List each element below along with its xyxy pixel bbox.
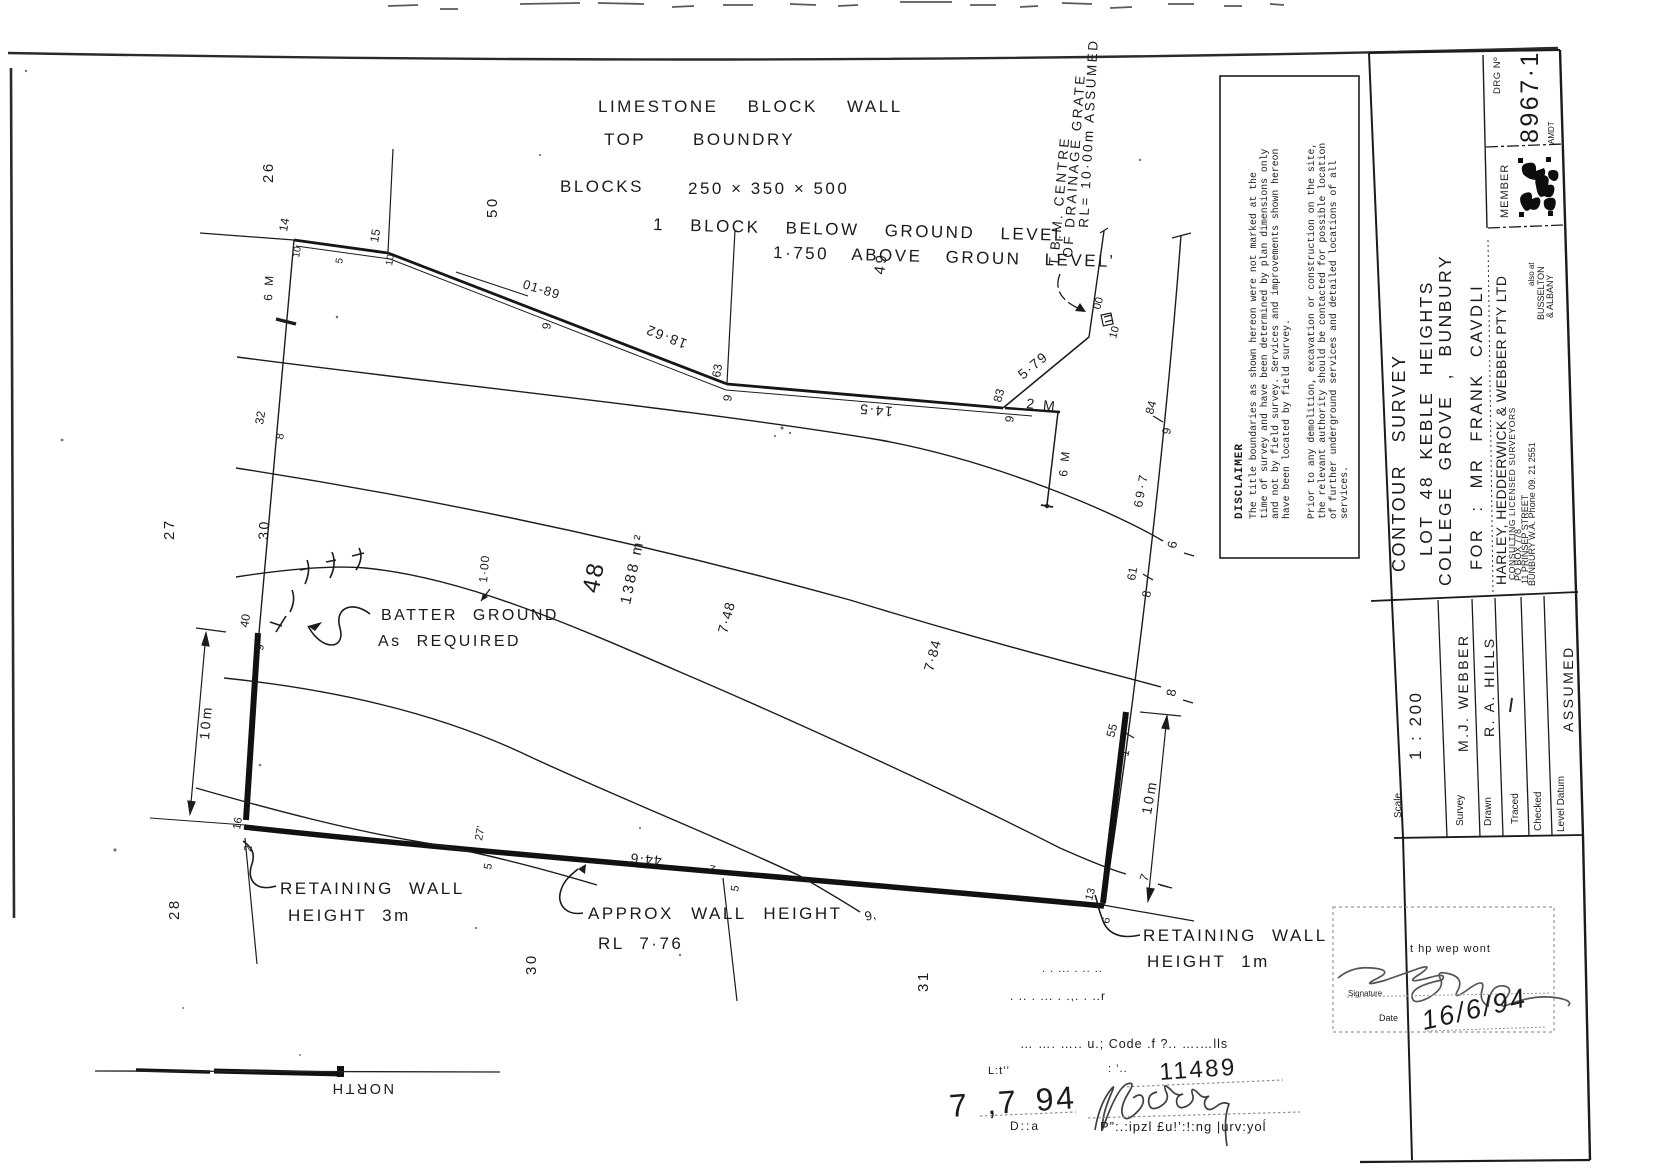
svg-text:250 × 350 × 500: 250 × 350 × 500: [688, 179, 849, 198]
svg-text:63: 63: [709, 363, 725, 379]
svg-text:30: 30: [523, 953, 540, 975]
svg-text:26: 26: [260, 161, 277, 183]
svg-text:. .. . ... . .,. .: . .. . ... . .,. . ..r: [1010, 989, 1106, 1003]
svg-text:Date: Date: [1379, 1013, 1398, 1023]
svg-text:Survey: Survey: [1455, 795, 1466, 826]
svg-text:RETAINING WALL: RETAINING WALL: [1143, 926, 1328, 945]
svg-text:BATTER GROUND: BATTER GROUND: [381, 607, 559, 624]
svg-text:30: 30: [255, 519, 272, 540]
svg-text:CONTOUR SURVEY: CONTOUR SURVEY: [1389, 354, 1409, 572]
svg-text:BLOCKS: BLOCKS: [560, 177, 644, 196]
svg-text:27’: 27’: [473, 825, 487, 842]
svg-text:Level Datum: Level Datum: [1556, 776, 1567, 832]
svg-text:: ’..: : ’..: [1108, 1063, 1128, 1075]
svg-text:15: 15: [367, 228, 383, 244]
svg-text:44·6: 44·6: [629, 850, 662, 869]
svg-text:also at: also at: [1527, 262, 1536, 286]
svg-text:BUNBURY W.A. Phone 09. 21 25: BUNBURY W.A. Phone 09. 21 2551: [1527, 442, 1537, 586]
svg-text:28: 28: [166, 898, 183, 920]
svg-text:27: 27: [161, 518, 178, 540]
svg-text:NORTH: NORTH: [330, 1080, 394, 1096]
svg-text:1 : 200: 1 : 200: [1406, 691, 1425, 761]
svg-text:RL 7·76: RL 7·76: [598, 934, 683, 953]
svg-text:FOR : MR FRANK CAVDLI: FOR : MR FRANK CAVDLI: [1468, 284, 1486, 570]
svg-text:8967·1: 8967·1: [1516, 50, 1544, 143]
svg-text:Drawn: Drawn: [1483, 797, 1494, 826]
svg-text:TOP BOUNDRY: TOP BOUNDRY: [604, 130, 795, 149]
svg-text:HEIGHT 1m: HEIGHT 1m: [1147, 952, 1270, 971]
svg-text:M.J. WEBBER: M.J. WEBBER: [1455, 633, 1471, 752]
svg-text:6 M: 6 M: [1056, 448, 1073, 477]
svg-text:14·5: 14·5: [858, 401, 893, 420]
svg-text:49: 49: [871, 252, 891, 276]
svg-text:DISCLAIMER: DISCLAIMER: [1234, 443, 1246, 519]
svg-text:. . ... . .. ..: . . ... . .. ..: [1042, 963, 1103, 975]
svg-text:R. A. HILLS: R. A. HILLS: [1481, 636, 1497, 737]
svg-text:10m: 10m: [196, 704, 215, 740]
svg-text:The title boundaries as shown: The title boundaries as shown hereon wer…: [1248, 172, 1259, 519]
svg-text:MEMBER: MEMBER: [1499, 164, 1511, 218]
svg-text:P”:.:ipzl £u!’:!:ng |urv:yoĺ: P”:.:ipzl £u!’:!:ng |urv:yoĺ: [1100, 1119, 1267, 1134]
svg-text:of further underground service: of further underground services and deta…: [1328, 160, 1339, 519]
svg-text:HEIGHT 3m: HEIGHT 3m: [288, 906, 411, 925]
svg-text:16: 16: [231, 816, 245, 830]
svg-text:Checked: Checked: [1533, 792, 1544, 831]
svg-text:2 M: 2 M: [1026, 395, 1058, 414]
svg-text:50: 50: [484, 196, 501, 218]
svg-text:Scale: Scale: [1393, 793, 1404, 818]
svg-text:6 M: 6 M: [261, 273, 276, 301]
svg-text:APPROX WALL HEIGHT: APPROX WALL HEIGHT: [588, 904, 843, 923]
svg-text:61: 61: [1124, 566, 1140, 582]
svg-text:As REQUIRED: As REQUIRED: [378, 633, 521, 650]
svg-text:services.: services.: [1339, 466, 1350, 519]
svg-text:t hp wep wont: t hp wep wont: [1410, 943, 1491, 955]
svg-text:time of survey and have been d: time of survey and have been determined …: [1259, 148, 1270, 519]
svg-text:31: 31: [915, 970, 932, 992]
svg-text:14: 14: [276, 217, 292, 233]
svg-text:DRG Nº: DRG Nº: [1492, 57, 1503, 94]
svg-text:ASSUMED: ASSUMED: [1560, 645, 1576, 732]
svg-text:40: 40: [237, 613, 253, 629]
svg-text:… …. ….. u.; Code .f ?.. ….: … …. ….. u.; Code .f ?.. ….…lls: [1020, 1037, 1228, 1051]
svg-text:1·00: 1·00: [476, 554, 492, 583]
svg-text:and not by field survey. Serv: and not by field survey. Services and im…: [1270, 148, 1281, 519]
svg-text:& ALBANY: & ALBANY: [1545, 274, 1555, 318]
svg-text:AMDT: AMDT: [1547, 121, 1556, 144]
svg-text:Prior to any demolition, excav: Prior to any demolition, excavation or c…: [1306, 143, 1317, 519]
svg-text:32: 32: [252, 410, 268, 426]
svg-text:have been located by field sur: have been located by field survey.: [1281, 319, 1292, 519]
svg-text:RETAINING WALL: RETAINING WALL: [280, 879, 465, 898]
svg-text:COLLEGE GROVE , BUNBURY: COLLEGE GROVE , BUNBURY: [1435, 254, 1455, 586]
svg-text:D::a: D::a: [1010, 1119, 1040, 1133]
svg-text:L:t’’: L:t’’: [988, 1065, 1010, 1077]
svg-text:Signature: Signature: [1348, 989, 1383, 998]
svg-text:LIMESTONE BLOCK WALL: LIMESTONE BLOCK WALL: [598, 97, 903, 116]
svg-text:11489: 11489: [1159, 1054, 1238, 1086]
svg-text:Traced: Traced: [1510, 793, 1521, 824]
svg-text:LOT 48 KEBLE HEIGHTS: LOT 48 KEBLE HEIGHTS: [1416, 280, 1436, 556]
svg-text:the relevant authority should: the relevant authority should be contact…: [1317, 143, 1328, 519]
